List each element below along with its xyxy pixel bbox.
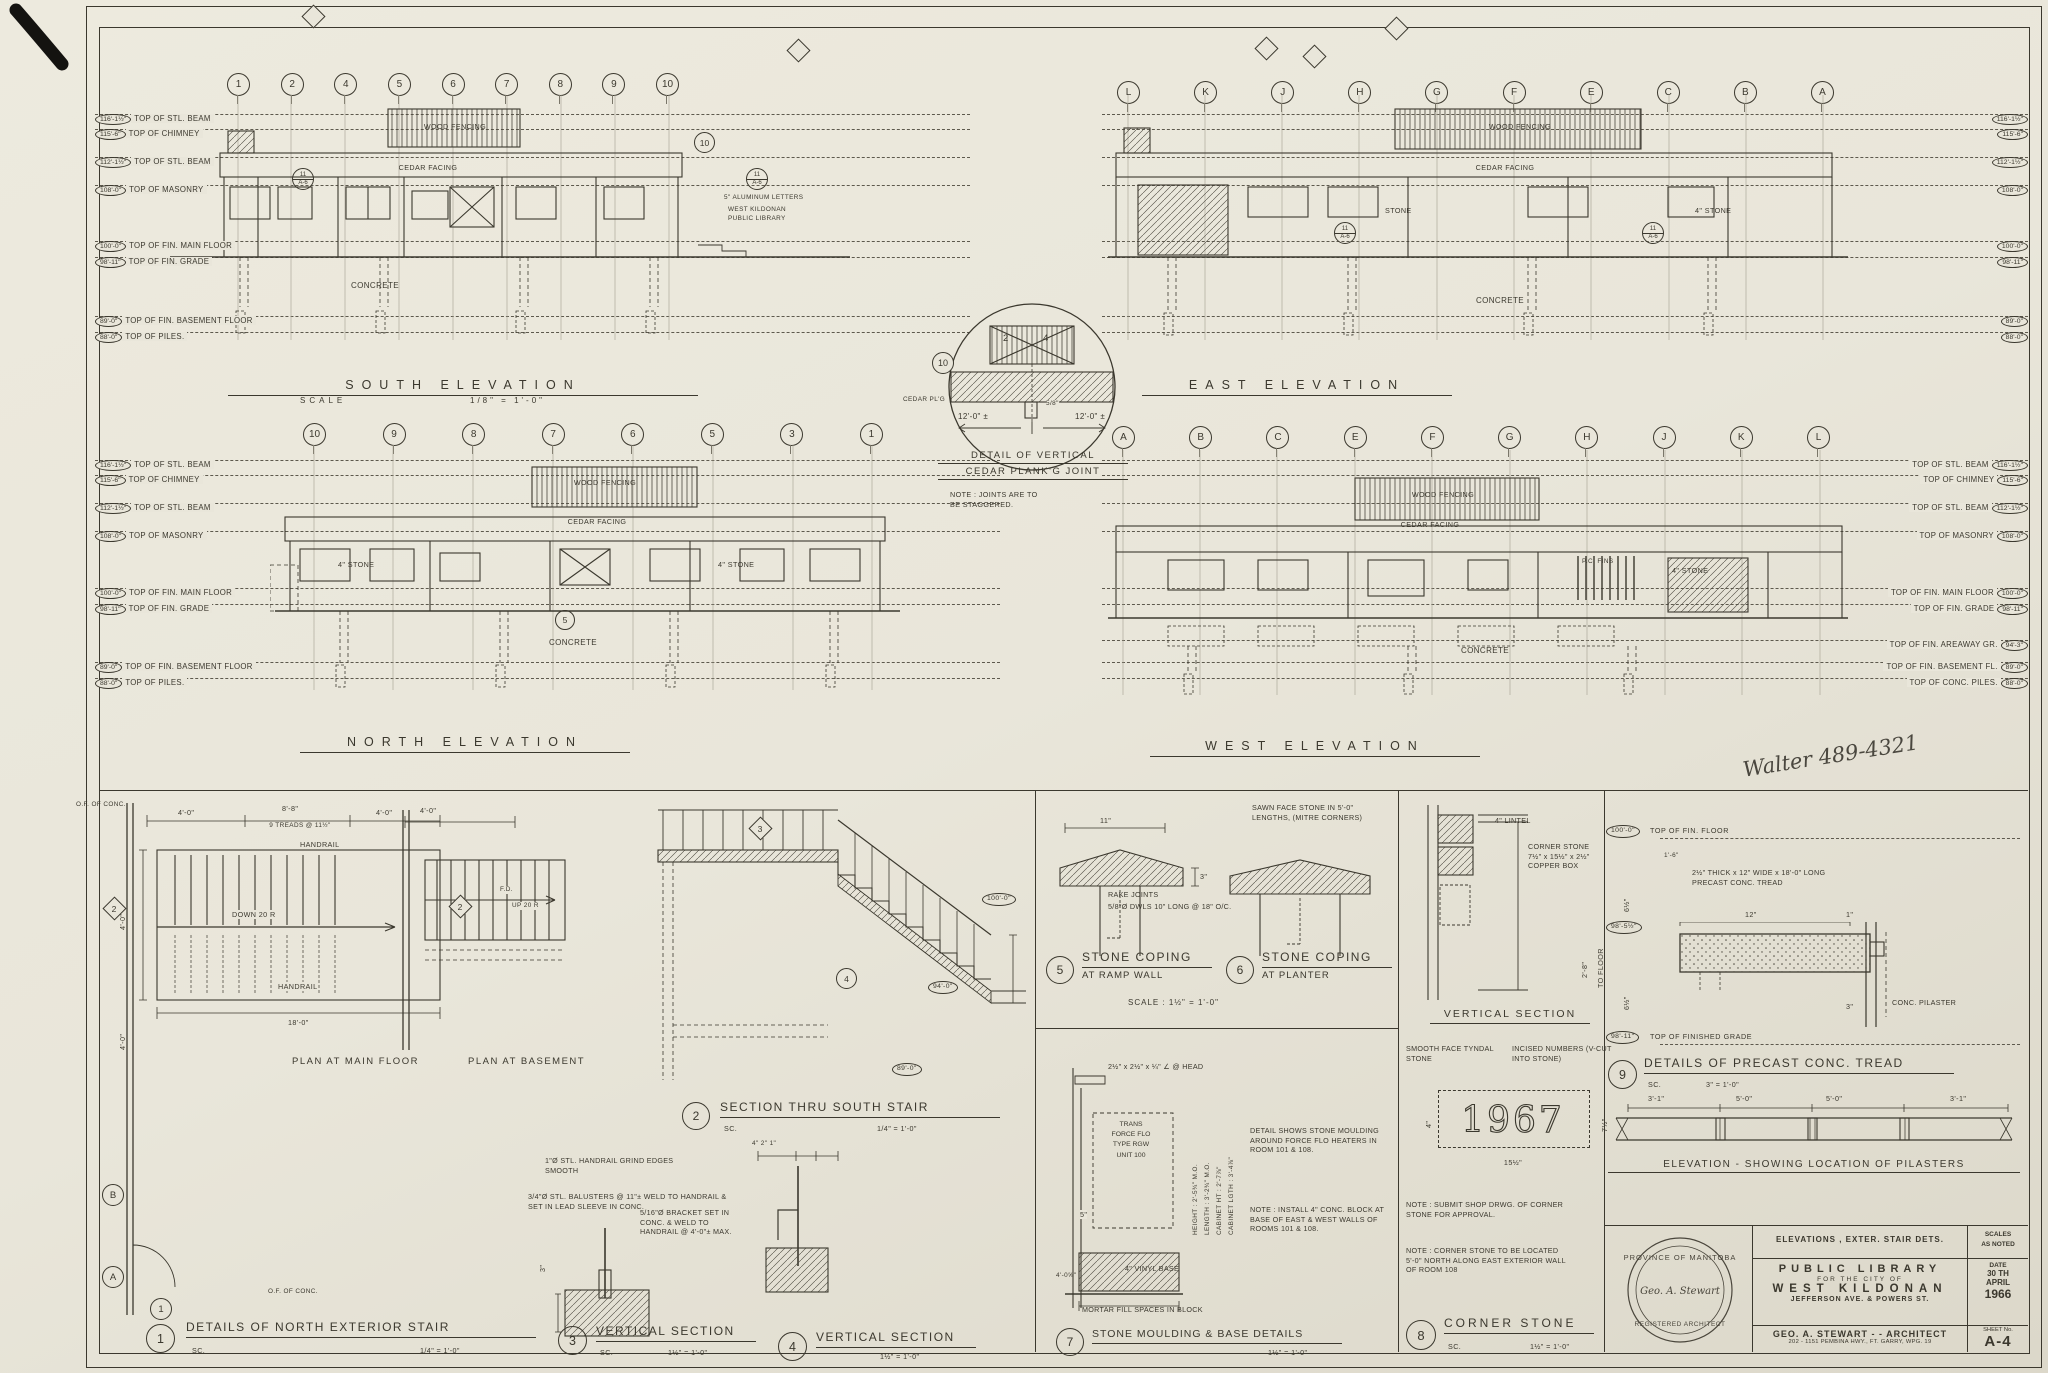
stair-of-conc-top: O.F. OF CONC. [76, 801, 126, 809]
precast-tread-title: DETAILS OF PRECAST CONC. TREAD [1644, 1056, 1954, 1074]
grid-bubble: 8 [549, 73, 572, 96]
marker-sheet: A-6 [293, 179, 313, 187]
date-label: DATE [1969, 1262, 2027, 1269]
submit-shop-dwg-note: NOTE : SUBMIT SHOP DRWG. OF CORNER STONE… [1406, 1200, 1566, 1219]
west-pc-fins-label: P.C. FINS [1582, 558, 1614, 566]
divider-line [100, 790, 2028, 791]
marker-num: 11 [754, 172, 760, 179]
level-value: 89'-0" [892, 1063, 922, 1076]
stair-of-conc-bottom: O.F. OF CONC. [268, 1288, 318, 1296]
unit-line: TYPE RGW [1095, 1140, 1167, 1150]
section-level-100: 100'-0" [982, 892, 1016, 906]
coping-dim-11: 11" [1100, 816, 1111, 825]
level-label: TOP OF STL. BEAM [1909, 460, 1991, 469]
north-wood-fencing-label: WOOD FENCING [550, 478, 660, 487]
pilaster-dim-3: 5'-0" [1826, 1094, 1842, 1103]
level-label: TOP OF STL. BEAM [131, 157, 213, 166]
level-value: 94'-3" [2001, 640, 2028, 651]
level-label: TOP OF STL. BEAM [131, 460, 213, 469]
level-value: 112'-1½" [95, 157, 131, 168]
detail1-scale: 1/4" = 1'-0" [420, 1346, 460, 1355]
level-label: TOP OF FIN. BASEMENT FL. [1883, 662, 2000, 671]
level-label: TOP OF CHIMNEY [126, 129, 203, 138]
titleblock-project-cell: PUBLIC LIBRARY FOR THE CITY OF WEST KILD… [1756, 1263, 1964, 1303]
vertical-section-3-title: VERTICAL SECTION [596, 1324, 756, 1342]
moulding-dim-5: 5" [1080, 1210, 1087, 1219]
section-marker-4: 4 [836, 968, 857, 989]
east-detail-marker-11-a6: 11A-6 [1642, 222, 1664, 244]
detail-number-2: 2 [682, 1102, 710, 1130]
architect-name: GEO. A. STEWART - - ARCHITECT [1756, 1329, 1964, 1339]
detail1-sc: SC. [192, 1346, 205, 1355]
stair-down-label: DOWN 20 R [232, 910, 276, 919]
basement-dim-4ft: 4'-0" [420, 806, 436, 815]
grid-bubble: 3 [780, 423, 803, 446]
architect-address: 202 - 1151 PEMBINA HWY., FT. GARRY, WPG.… [1756, 1339, 1964, 1345]
level-value: 98'-11" [1606, 1031, 1639, 1044]
project-name-2: FOR THE CITY OF [1756, 1276, 1964, 1283]
project-name-3: WEST KILDONAN [1756, 1283, 1964, 1295]
grid-bubble: 5 [701, 423, 724, 446]
level-label: TOP OF STL. BEAM [131, 503, 213, 512]
stair-section-drawing [628, 795, 1036, 1095]
tread-dim-12: 12" [1745, 910, 1757, 919]
grid-bubble: 5 [388, 73, 411, 96]
east-detail-marker-11-a6: 11A-6 [1334, 222, 1356, 244]
moulding-dim-base: 4'-0⅝" [1056, 1272, 1076, 1280]
south-cedar-facing-label: CEDAR FACING [378, 163, 478, 172]
tread-dim-6half-a: 6½" [1622, 898, 1631, 912]
tread-dim-3: 3" [1846, 1002, 1853, 1011]
section-level-89: 89'-0" [892, 1062, 922, 1076]
architect-seal: PROVINCE OF MANITOBA Geo. A. Stewart REG… [1612, 1232, 1748, 1350]
level-label: TOP OF MASONRY [126, 531, 206, 540]
stair-dim-18ft: 18'-0" [288, 1018, 309, 1027]
corner-dim-2ft8: 2'-8" [1580, 962, 1589, 978]
marker-num: 11 [300, 172, 306, 179]
level-label: TOP OF MASONRY [126, 185, 206, 194]
marker-sheet: A-6 [747, 179, 767, 187]
stair-dim-4ft-left-b: 4'-0" [118, 1034, 127, 1050]
pen-mark [0, 0, 90, 90]
date-day: 30 TH [1969, 1269, 2027, 1278]
rake-joints-note: RAKE JOINTS [1108, 890, 1158, 900]
level-value: 98'-11" [95, 604, 126, 615]
detail3-scale: 1½" = 1'-0" [668, 1348, 707, 1357]
marker-num: 11 [1650, 226, 1656, 233]
south-aluminum-letters-note: 5" ALUMINUM LETTERS [724, 194, 803, 202]
south-concrete-label: CONCRETE [330, 281, 420, 291]
detail-number-1: 1 [146, 1324, 175, 1353]
head-angle-note: 2½" x 2½" x ¼" ∠ @ HEAD [1108, 1062, 1238, 1072]
east-cedar-facing-label: CEDAR FACING [1450, 163, 1560, 172]
seal-bottom-text: REGISTERED ARCHITECT [1635, 1321, 1726, 1328]
conc-pilaster-label: CONC. PILASTER [1892, 998, 1967, 1008]
stone-moulding-title: STONE MOULDING & BASE DETAILS [1092, 1328, 1342, 1344]
tread-sc: SC. [1648, 1080, 1661, 1089]
plank-joint-detail-drawing [945, 300, 1120, 475]
level-label: TOP OF FIN. MAIN FLOOR [126, 241, 235, 250]
level-value: 115'-6" [1997, 129, 2028, 140]
tread-dim-1: 1" [1846, 910, 1853, 919]
level-value: 100'-0" [1606, 825, 1640, 838]
level-value: 108'-0" [95, 531, 126, 542]
marker-num: 11 [1342, 226, 1348, 233]
stone-coping-ramp-title: STONE COPING [1082, 950, 1212, 968]
level-value: 108'-0" [1997, 531, 2028, 542]
titleblock-architect-cell: GEO. A. STEWART - - ARCHITECT 202 - 1151… [1756, 1329, 1964, 1345]
tread-level-floor: 100'-0" [1606, 824, 1640, 838]
south-detail-marker-11-a6: 11A-6 [292, 168, 314, 190]
tread-dim-6half-b: 6½" [1622, 996, 1631, 1010]
south-scale-label: SCALE [300, 396, 346, 406]
titleblock-date-cell: DATE 30 TH APRIL 1966 [1969, 1262, 2027, 1301]
grid-bubble: G [1498, 426, 1521, 449]
project-address: JEFFERSON AVE. & POWERS ST. [1756, 1296, 1964, 1303]
plan-basement-label: PLAN AT BASEMENT [468, 1056, 585, 1068]
level-value: 100'-0" [1997, 241, 2028, 252]
level-value: 116'-1½" [95, 114, 131, 125]
east-wood-fencing-label: WOOD FENCING [1465, 122, 1575, 131]
stair-grid-bubble-a: A [102, 1266, 124, 1288]
detail3-sc: SC. [600, 1348, 613, 1357]
plank-side-label: CEDAR PL'G [903, 396, 945, 404]
cs-line: 7½" x 15½" x 2½" [1528, 852, 1628, 862]
east-stone-label: STONE [1385, 206, 1412, 215]
detail-number-7: 7 [1056, 1328, 1084, 1356]
bracket-detail-drawing [738, 1148, 853, 1300]
stone-coping-planter-sub: AT PLANTER [1262, 970, 1330, 982]
grid-bubble: 1 [227, 73, 250, 96]
grid-bubble: 10 [303, 423, 326, 446]
stair-handrail-label-b: HANDRAIL [278, 982, 318, 991]
north-cedar-facing-label: CEDAR FACING [542, 517, 652, 526]
level-label: TOP OF CHIMNEY [1920, 475, 1997, 484]
level-value: 115'-6" [95, 475, 126, 486]
titleblock-divider [1752, 1258, 2028, 1259]
south-elevation-title: SOUTH ELEVATION [228, 377, 698, 396]
pilaster-dim-2: 5'-0" [1736, 1094, 1752, 1103]
plank-num-2: 2 [1003, 333, 1009, 345]
level-label: TOP OF FIN. MAIN FLOOR [1888, 588, 1997, 597]
grid-bubble: 7 [542, 423, 565, 446]
project-name-1: PUBLIC LIBRARY [1756, 1263, 1964, 1275]
north-stone4-left-label: 4" STONE [338, 560, 374, 569]
bracket-note: 5/16"Ø BRACKET SET IN CONC. & WELD TO HA… [640, 1208, 740, 1237]
detail-number-5: 5 [1046, 956, 1074, 984]
seal-center-text: Geo. A. Stewart [1640, 1286, 1721, 1297]
section-scale-value: 1/4" = 1'-0" [877, 1124, 917, 1133]
grid-bubble: L [1807, 426, 1830, 449]
level-label: TOP OF FIN. GRADE [126, 257, 213, 266]
north-concrete-label: CONCRETE [528, 638, 618, 648]
plank-dim-left: 12'-0" ± [958, 412, 988, 422]
corner-vertical-section-label: VERTICAL SECTION [1430, 1008, 1590, 1024]
detail-number-4: 4 [778, 1332, 807, 1361]
grid-bubble: 6 [621, 423, 644, 446]
detail-number-8: 8 [1406, 1320, 1436, 1350]
to-floor-label: TO FLOOR [1596, 948, 1605, 988]
moulding-vdim-3: CABINET HT : 2'-7⅞" [1216, 1166, 1224, 1235]
lintel-note: 4" LINTEL [1495, 816, 1550, 826]
basement-plan-drawing [385, 800, 595, 1070]
unit-line: FORCE FLO [1095, 1130, 1167, 1140]
level-label: TOP OF MASONRY [1917, 531, 1997, 540]
level-label: TOP OF STL. BEAM [131, 114, 213, 123]
drawing-sheet: 1245678910 LKJHGFECBA 109876531 ABCEFGHJ… [0, 0, 2048, 1373]
stone-coping-ramp-sub: AT RAMP WALL [1082, 970, 1163, 982]
floor-dash-line [1660, 838, 2020, 839]
north-exterior-stair-title: DETAILS OF NORTH EXTERIOR STAIR [186, 1320, 536, 1338]
level-value: 98'-11" [1997, 257, 2028, 268]
grid-row-south: 1245678910 [227, 73, 679, 96]
smooth-face-note: SMOOTH FACE TYNDAL STONE [1406, 1044, 1498, 1063]
scales-label: SCALES [1969, 1230, 2027, 1240]
moulding-vdim-2: LENGTH : 3'-2¾" M.O. [1204, 1162, 1212, 1235]
grid-bubble: 9 [383, 423, 406, 446]
grid-bubble: 4 [334, 73, 357, 96]
stair-treads-note: 9 TREADS @ 11½" [240, 822, 360, 830]
level-value: 108'-0" [95, 185, 126, 196]
titleblock-top-line [1604, 1225, 2028, 1226]
moulding-vdim-4: CABINET LGTH : 3'-4⅞" [1228, 1157, 1236, 1235]
grid-num: 3 [758, 823, 763, 833]
basement-up-label: UP 20 R [512, 902, 539, 910]
detail-number-3: 3 [558, 1326, 587, 1355]
grid-bubble: 1 [860, 423, 883, 446]
tread-level-mid: 98'-5½" [1606, 920, 1642, 934]
moulding-install-note: NOTE : INSTALL 4" CONC. BLOCK AT BASE OF… [1250, 1205, 1385, 1234]
east-stone4-label: 4" STONE [1695, 206, 1731, 215]
coping-scale: SCALE : 1½" = 1'-0" [1128, 998, 1219, 1008]
grid-bubble: F [1421, 426, 1444, 449]
stone-moulding-drawing [1055, 1058, 1185, 1320]
basement-fd-label: F.D. [500, 886, 513, 894]
plank-detail-marker-10: 10 [932, 352, 954, 374]
cs-line: COPPER BOX [1528, 861, 1628, 871]
corner-stone-size-note: CORNER STONE 7½" x 15½" x 2½" COPPER BOX [1528, 842, 1628, 871]
titleblock-scales-cell: SCALES AS NOTED [1969, 1230, 2027, 1251]
grid-bubble: C [1266, 426, 1289, 449]
level-value: 112'-1½" [95, 503, 131, 514]
west-cedar-facing-label: CEDAR FACING [1375, 520, 1485, 529]
plank-detail-title-2: CEDAR PLANK'G JOINT [938, 466, 1128, 480]
level-value: 94'-0" [928, 981, 958, 994]
stair-dim-4ft-a: 4'-0" [178, 808, 194, 817]
level-label: TOP OF PILES. [122, 332, 187, 341]
pilaster-elevation-drawing [1608, 1104, 2020, 1149]
date-year: 1966 [1969, 1287, 2027, 1301]
scales-value: AS NOTED [1969, 1240, 2027, 1250]
sawn-face-stone-note: SAWN FACE STONE IN 5'-0" LENGTHS, (MITRE… [1252, 803, 1377, 822]
east-elevation-title: EAST ELEVATION [1142, 377, 1452, 396]
plank-note-2: BE STAGGERED. [950, 500, 1013, 509]
titleblock-sheet-cell: SHEET No. A-4 [1969, 1327, 2027, 1350]
west-stone4-label: 4" STONE [1672, 566, 1708, 575]
grade-dash-line [1660, 1044, 2020, 1045]
divider-line [1035, 1028, 1398, 1029]
level-label: TOP OF FIN. AREAWAY GR. [1887, 640, 2001, 649]
south-scale-value: 1/8" = 1'-0" [470, 396, 545, 406]
tread-level-grade: 98'-11" [1606, 1030, 1639, 1044]
south-library-sign-line1: WEST KILDONAN [728, 206, 786, 214]
year-1967-stone: 1967 [1450, 1094, 1576, 1142]
divider-line [1604, 790, 1605, 1352]
incised-numbers-note: INCISED NUMBERS (V-CUT INTO STONE) [1512, 1044, 1632, 1063]
tread-scale: 3" = 1'-0" [1706, 1080, 1739, 1089]
corner-dim-4: 4" [1424, 1121, 1433, 1128]
south-detail-marker-10: 10 [694, 132, 715, 153]
plank-num-4: 4 [1043, 333, 1049, 345]
level-label: TOP OF FIN. GRADE [126, 604, 213, 613]
plank-dim-small: 5/8" [1046, 400, 1059, 408]
south-wood-fencing-label: WOOD FENCING [405, 122, 505, 131]
level-value: 116'-1½" [1992, 460, 2028, 471]
grid-bubble: E [1344, 426, 1367, 449]
level-value: 88'-0" [2001, 678, 2028, 689]
level-label: TOP OF FIN. BASEMENT FLOOR [122, 662, 255, 671]
grid-bubble: 6 [442, 73, 465, 96]
level-value: 100'-0" [95, 241, 126, 252]
plank-detail-title-1: DETAIL OF VERTICAL [938, 450, 1128, 464]
unit-line: UNIT 100 [1095, 1151, 1167, 1161]
pilaster-dim-1: 3'-1" [1648, 1094, 1664, 1103]
south-elevation-drawing [150, 95, 950, 345]
vinyl-base-note: 4" VINYL BASE [1125, 1264, 1195, 1274]
north-detail-marker-5: 5 [555, 610, 575, 630]
pilaster-dim-4: 3'-1" [1950, 1094, 1966, 1103]
seal-top-text: PROVINCE OF MANITOBA [1624, 1253, 1737, 1262]
level-value: 100'-0" [95, 588, 126, 599]
vertical-section-4-title: VERTICAL SECTION [816, 1330, 976, 1348]
corner-stone-title: CORNER STONE [1444, 1316, 1594, 1334]
grid-row-west: ABCEFGHJKL [1112, 426, 1830, 449]
section-thru-south-stair-title: SECTION THRU SOUTH STAIR [720, 1100, 1000, 1118]
level-value: 116'-1½" [1992, 114, 2028, 125]
grid-bubble: B [1189, 426, 1212, 449]
date-month: APRIL [1969, 1278, 2027, 1287]
handrail-note: 1"Ø STL. HANDRAIL GRIND EDGES SMOOTH [545, 1156, 695, 1175]
marker-sheet: A-6 [1335, 233, 1355, 241]
stone-coping-planter-title: STONE COPING [1262, 950, 1392, 968]
south-detail-marker-11-a6: 11A-6 [746, 168, 768, 190]
grid-num: 2 [112, 903, 117, 913]
precast-tread-note: 2½" THICK x 12" WIDE x 18'-0" LONG PRECA… [1692, 868, 1827, 887]
south-library-sign-line2: PUBLIC LIBRARY [728, 215, 786, 223]
corner-sc: SC. [1448, 1342, 1461, 1351]
moulding-scale: 1½" = 1'-0" [1268, 1348, 1307, 1357]
finished-grade-label: TOP OF FINISHED GRADE [1650, 1032, 1752, 1041]
stair-grid-bubble-b: B [102, 1184, 124, 1206]
level-value: 116'-1½" [95, 460, 131, 471]
level-label: TOP OF FIN. BASEMENT FLOOR [122, 316, 255, 325]
moulding-vdim-1: HEIGHT : 2'-5¾" M.O. [1192, 1164, 1200, 1235]
corner-dim-15half: 15½" [1478, 1158, 1548, 1167]
plank-dim-right: 12'-0" ± [1075, 412, 1105, 422]
level-value: 89'-0" [2001, 662, 2028, 673]
west-wood-fencing-label: WOOD FENCING [1388, 490, 1498, 499]
moulding-detail-note: DETAIL SHOWS STONE MOULDING AROUND FORCE… [1250, 1126, 1385, 1155]
plank-note-1: NOTE : JOINTS ARE TO [950, 490, 1038, 499]
titleblock-sheet-title: ELEVATIONS , EXTER. STAIR DETS. [1756, 1235, 1964, 1244]
west-elevation-title: WEST ELEVATION [1150, 738, 1480, 757]
grid-bubble: J [1653, 426, 1676, 449]
east-concrete-label: CONCRETE [1455, 296, 1545, 306]
level-label: TOP OF FIN. MAIN FLOOR [126, 588, 235, 597]
titleblock-divider [1752, 1225, 1753, 1352]
detail-number-6: 6 [1226, 956, 1254, 984]
titleblock-divider [1752, 1325, 2028, 1326]
section-sc-label: SC. [724, 1124, 737, 1133]
divider-line [1398, 790, 1399, 1352]
section-level-94: 94'-0" [928, 980, 958, 994]
level-value: 115'-6" [95, 129, 126, 140]
level-value: 98'-11" [1997, 604, 2028, 615]
grid-bubble: 2 [281, 73, 304, 96]
grid-num: 2 [458, 901, 463, 911]
tread-dim-1ft6: 1'-6" [1664, 852, 1679, 860]
grid-bubble: K [1730, 426, 1753, 449]
mortar-fill-note: MORTAR FILL SPACES IN BLOCK [1082, 1305, 1203, 1315]
north-stone4-right-label: 4" STONE [718, 560, 754, 569]
level-value: 112'-1½" [1992, 157, 2028, 168]
grid-row-north: 109876531 [303, 423, 883, 446]
level-value: 108'-0" [1997, 185, 2028, 196]
heater-unit-label: TRANS FORCE FLO TYPE RGW UNIT 100 [1095, 1120, 1167, 1161]
corner-scale: 1½" = 1'-0" [1530, 1342, 1569, 1351]
level-value: 115'-6" [1997, 475, 2028, 486]
level-value: 98'-5½" [1606, 921, 1642, 934]
stair-dim-8ft8: 8'-8" [282, 804, 298, 813]
year-text: 1967 [1461, 1100, 1565, 1141]
grid-bubble: 7 [495, 73, 518, 96]
west-elevation-drawing [1108, 450, 1853, 700]
level-label: TOP OF STL. BEAM [1909, 503, 1991, 512]
grid-bubble: H [1575, 426, 1598, 449]
east-elevation-drawing [1108, 95, 1853, 345]
level-value: 112'-1½" [1992, 503, 2028, 514]
level-label: TOP OF PILES. [122, 678, 187, 687]
pilaster-elevation-title: ELEVATION - SHOWING LOCATION OF PILASTER… [1608, 1158, 2020, 1173]
level-value: 98'-11" [95, 257, 126, 268]
level-value: 89'-0" [2001, 316, 2028, 327]
sheet-number: A-4 [1969, 1333, 2027, 1350]
grid-bubble: 8 [462, 423, 485, 446]
detail-number-9: 9 [1608, 1060, 1637, 1089]
level-label: TOP OF FIN. GRADE [1911, 604, 1998, 613]
marker-sheet: A-6 [1643, 233, 1663, 241]
precast-tread-drawing [1660, 922, 2020, 1027]
grid-bubble: 10 [656, 73, 679, 96]
stair-handrail-label-a: HANDRAIL [300, 840, 340, 849]
corner-location-note: NOTE : CORNER STONE TO BE LOCATED 5'-0" … [1406, 1246, 1571, 1275]
level-value: 88'-0" [2001, 332, 2028, 343]
level-value: 100'-0" [1997, 588, 2028, 599]
dowels-note: 5/8"Ø DWLS 10" LONG @ 18" O/C. [1108, 902, 1248, 912]
corner-stone-section-drawing [1408, 800, 1538, 1005]
detail4-scale: 1½" = 1'-0" [880, 1352, 919, 1361]
west-concrete-label: CONCRETE [1440, 646, 1530, 656]
level-value: 100'-0" [982, 893, 1016, 906]
cs-line: CORNER STONE [1528, 842, 1628, 852]
top-fin-floor-label: TOP OF FIN. FLOOR [1650, 826, 1729, 835]
stair-grid-bubble-1: 1 [150, 1298, 172, 1320]
grid-bubble: 9 [602, 73, 625, 96]
unit-line: TRANS [1095, 1120, 1167, 1130]
stair-dim-4ft-left-a: 4'-0" [118, 914, 127, 930]
level-label: TOP OF CHIMNEY [126, 475, 203, 484]
level-label: TOP OF CONC. PILES. [1907, 678, 2001, 687]
